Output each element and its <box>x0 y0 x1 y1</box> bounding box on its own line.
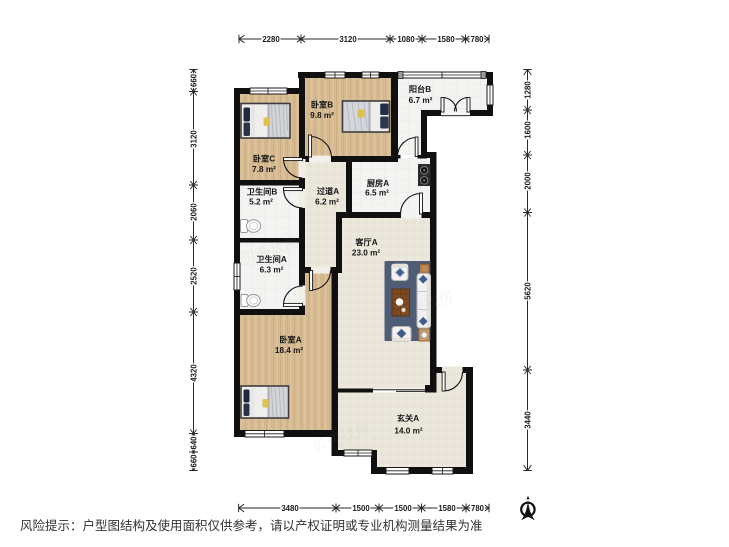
svg-text:5.2 m²: 5.2 m² <box>249 198 273 207</box>
svg-text:6.7 m²: 6.7 m² <box>409 96 433 105</box>
svg-text:640: 640 <box>189 436 198 450</box>
svg-text:6.2 m²: 6.2 m² <box>315 198 339 207</box>
svg-text:1500: 1500 <box>394 504 412 513</box>
svg-text:1500: 1500 <box>352 504 370 513</box>
svg-text:7.8 m²: 7.8 m² <box>252 165 276 174</box>
svg-text:1280: 1280 <box>523 81 532 99</box>
svg-text:780: 780 <box>471 504 485 513</box>
svg-text:3480: 3480 <box>281 504 299 513</box>
svg-text:1580: 1580 <box>438 504 456 513</box>
svg-text:过道A: 过道A <box>317 186 339 196</box>
svg-text:1600: 1600 <box>523 121 532 139</box>
svg-text:780: 780 <box>470 35 484 44</box>
svg-text:14.0 m²: 14.0 m² <box>394 427 422 436</box>
svg-text:4320: 4320 <box>189 364 198 382</box>
svg-text:风险提示：户型图结构及使用面积仅供参考，请以产权证明或专业机: 风险提示：户型图结构及使用面积仅供参考，请以产权证明或专业机构测量结果为准 <box>20 518 483 533</box>
svg-text:660: 660 <box>189 73 198 87</box>
svg-text:卫生间B: 卫生间B <box>247 187 278 197</box>
svg-text:18.4 m²: 18.4 m² <box>275 346 303 355</box>
svg-text:2520: 2520 <box>189 267 198 285</box>
svg-text:5620: 5620 <box>523 282 532 300</box>
svg-text:6.3 m²: 6.3 m² <box>260 266 284 275</box>
svg-text:6.5 m²: 6.5 m² <box>365 189 389 198</box>
svg-text:660: 660 <box>189 454 198 468</box>
svg-text:卧室C: 卧室C <box>253 154 275 164</box>
svg-text:卧室A: 卧室A <box>279 335 301 345</box>
svg-text:23.0 m²: 23.0 m² <box>352 249 380 258</box>
svg-text:阳台B: 阳台B <box>409 84 431 94</box>
svg-text:1080: 1080 <box>397 35 415 44</box>
svg-text:9.8 m²: 9.8 m² <box>310 111 334 120</box>
svg-text:2060: 2060 <box>189 203 198 221</box>
svg-text:3120: 3120 <box>189 130 198 148</box>
svg-text:1580: 1580 <box>437 35 455 44</box>
svg-text:3440: 3440 <box>523 411 532 429</box>
svg-text:厨房A: 厨房A <box>367 178 389 188</box>
svg-text:玄关A: 玄关A <box>397 413 419 423</box>
svg-text:客厅A: 客厅A <box>354 237 377 247</box>
svg-text:3120: 3120 <box>339 35 357 44</box>
svg-text:2280: 2280 <box>262 35 280 44</box>
svg-text:卧室B: 卧室B <box>311 100 333 110</box>
svg-text:2000: 2000 <box>523 172 532 190</box>
